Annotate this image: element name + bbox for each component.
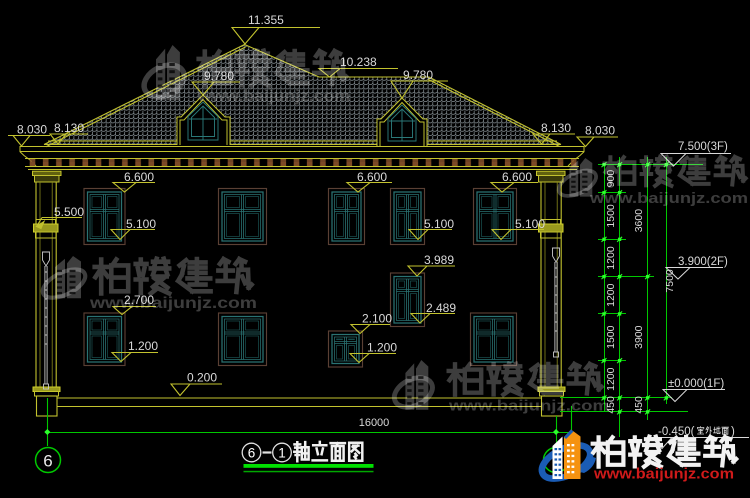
svg-text:6: 6: [248, 446, 256, 461]
svg-text:1500: 1500: [605, 325, 617, 349]
svg-text:8.030: 8.030: [17, 123, 47, 137]
svg-text:1500: 1500: [605, 204, 617, 228]
svg-text:±0.000(1F): ±0.000(1F): [668, 378, 724, 390]
svg-text:3.989: 3.989: [424, 253, 454, 267]
svg-text:9.780: 9.780: [403, 68, 433, 82]
svg-text:www.baijunjz.com: www.baijunjz.com: [197, 88, 350, 105]
svg-text:7500: 7500: [664, 269, 676, 293]
svg-text:10.238: 10.238: [340, 55, 377, 69]
svg-text:6.600: 6.600: [502, 170, 532, 184]
svg-text:16000: 16000: [359, 417, 390, 429]
svg-text:0.200: 0.200: [187, 371, 217, 385]
svg-text:www.baijunjz.com: www.baijunjz.com: [448, 398, 609, 415]
svg-text:5.100: 5.100: [515, 217, 545, 231]
svg-text:1200: 1200: [605, 246, 617, 270]
svg-text:6.600: 6.600: [357, 170, 387, 184]
svg-text:11.355: 11.355: [248, 13, 284, 27]
svg-text:3600: 3600: [633, 209, 645, 233]
svg-text:6: 6: [43, 452, 52, 471]
svg-text:8.130: 8.130: [54, 121, 84, 135]
svg-text:5.100: 5.100: [424, 217, 454, 231]
svg-text:7.500(3F): 7.500(3F): [678, 141, 728, 153]
svg-text:www.baijunjz.com: www.baijunjz.com: [89, 295, 257, 312]
svg-text:5.100: 5.100: [126, 217, 156, 231]
svg-text:3900: 3900: [633, 325, 645, 349]
svg-text:1200: 1200: [605, 367, 617, 391]
svg-text:1200: 1200: [605, 283, 617, 307]
svg-text:2.489: 2.489: [426, 301, 456, 315]
svg-text:1.200: 1.200: [128, 339, 158, 353]
svg-text:6.600: 6.600: [124, 170, 154, 184]
svg-text:www.baijunjz.com: www.baijunjz.com: [593, 467, 734, 483]
svg-text:8.030: 8.030: [585, 124, 615, 138]
svg-text:5.500: 5.500: [54, 205, 84, 219]
svg-text:1.200: 1.200: [367, 341, 397, 355]
svg-text:450: 450: [633, 396, 645, 414]
svg-text:1: 1: [278, 446, 286, 461]
svg-text:8.130: 8.130: [541, 121, 571, 135]
svg-text:): ): [731, 426, 735, 438]
svg-text:2.100: 2.100: [362, 312, 392, 326]
svg-text:www.baijunjz.com: www.baijunjz.com: [589, 190, 748, 207]
svg-text:3.900(2F): 3.900(2F): [678, 256, 728, 268]
